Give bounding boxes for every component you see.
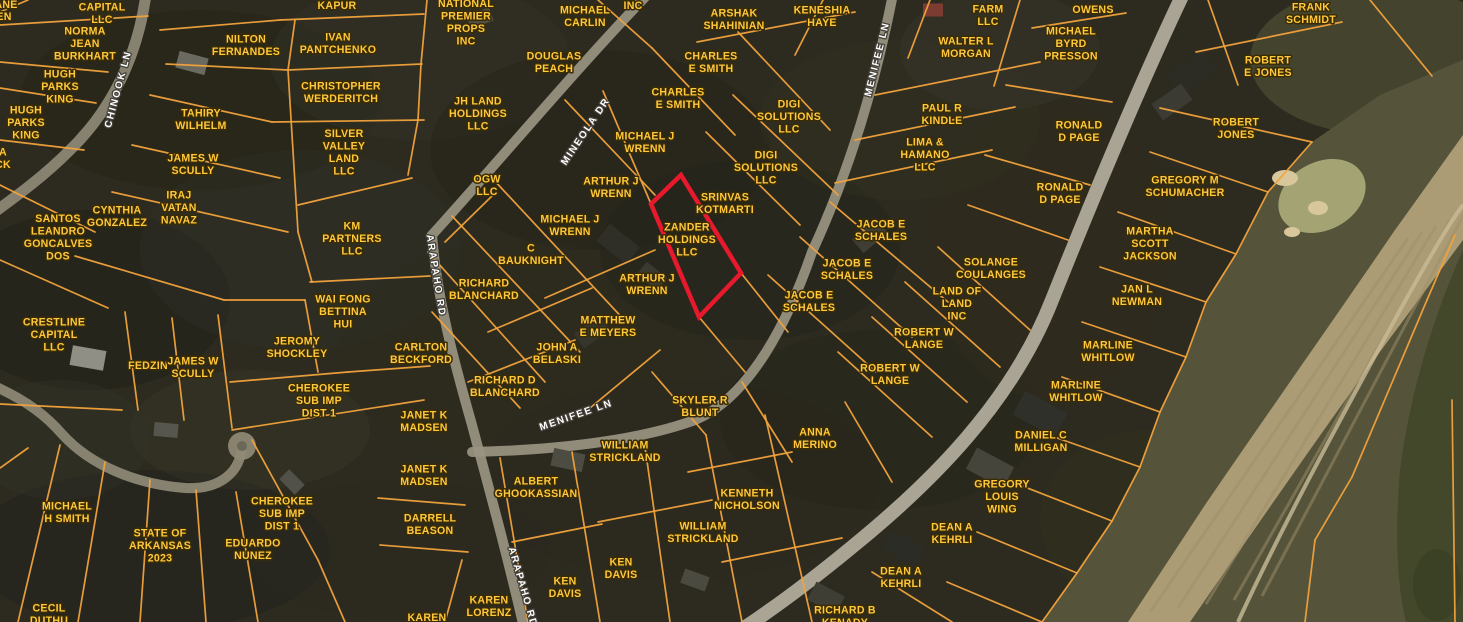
parcel-owner-label: DEAN AKEHRLI (931, 522, 973, 547)
sand-bunker (1284, 227, 1300, 237)
cul-de-sac-island (237, 441, 247, 451)
parcel-owner-label: DANIEL CMILLIGAN (1014, 430, 1067, 455)
parcel-owner-label: CHARLESE SMITH (685, 51, 738, 76)
parcel-owner-label: GREGORY MSCHUMACHER (1145, 175, 1224, 200)
parcel-owner-label: KENDAVIS (605, 557, 638, 582)
parcel-owner-label: JANET KMADSEN (400, 464, 447, 489)
parcel-owner-label: INC (624, 0, 643, 12)
parcel-owner-label: JACOB ESCHALES (855, 219, 907, 244)
parcel-owner-label: ARTHUR JWRENN (619, 273, 675, 298)
parcel-owner-label: DEAN AKEHRLI (880, 566, 922, 591)
parcel-owner-label: RICHARDBLANCHARD (449, 278, 519, 303)
parcel-owner-label: OWENS (1072, 4, 1113, 16)
sand-bunker (1308, 201, 1328, 215)
parcel-owner-label: HUGHPARKSKING (41, 68, 79, 105)
parcel-owner-label: JEROMYSHOCKLEY (267, 336, 328, 361)
parcel-owner-label: MARLINEWHITLOW (1049, 380, 1103, 405)
parcel-owner-label: JOHN ABELASKI (533, 342, 581, 367)
parcel-owner-label: CYNTHIAGONZALEZ (87, 205, 148, 230)
parcel-owner-label: JACOB ESCHALES (783, 290, 835, 315)
parcel-owner-label: SRINVASKOTMARTI (696, 192, 754, 217)
parcel-owner-label: ANE (0, 0, 18, 11)
parcel-owner-label: EN (0, 11, 12, 23)
parcel-owner-label: MICHAELCARLIN (560, 5, 610, 30)
parcel-owner-label: JAMES WSCULLY (167, 356, 218, 381)
parcel-owner-label: ANNAMERINO (793, 427, 837, 452)
parcel-owner-label: ARTHUR JWRENN (583, 176, 639, 201)
parcel-owner-label: CECILDUTHU (30, 603, 68, 622)
parcel-owner-label: DOUGLASPEACH (527, 51, 582, 76)
parcel-owner-label: FEDZIN (128, 360, 168, 372)
parcel-owner-label: TAHIRYWILHELM (175, 108, 226, 133)
parcel-owner-label: KENDAVIS (549, 576, 582, 601)
parcel-owner-label: ARSHAKSHAHINIAN (703, 8, 764, 33)
parcel-owner-label: KENNETHNICHOLSON (714, 488, 780, 513)
parcel-owner-label: OGWLLC (473, 174, 500, 199)
parcel-owner-label: RICHARD BKENADY (814, 605, 876, 622)
parcel-owner-label: PAUL RKINDLE (922, 103, 963, 128)
parcel-owner-label: KAPUR (318, 0, 357, 12)
parcel-owner-label: KAREN (408, 612, 447, 622)
parcel-owner-label: RONALDD PAGE (1037, 182, 1084, 207)
parcel-owner-label: SOLANGECOULANGES (956, 257, 1026, 282)
parcel-owner-label: KARENLORENZ (466, 595, 511, 620)
parcel-owner-label: JANET KMADSEN (400, 410, 447, 435)
parcel-owner-label: JACOB ESCHALES (821, 258, 873, 283)
parcel-owner-label: RONALDD PAGE (1056, 120, 1103, 145)
parcel-map-canvas[interactable]: CAPITALLLCNORMAJEANBURKHARTHUGHPARKSKING… (0, 0, 1463, 622)
parcel-owner-label: MARLINEWHITLOW (1081, 340, 1135, 365)
parcel-owner-label: ROBERTE JONES (1244, 55, 1292, 80)
parcel-owner-label: MATTHEWE MEYERS (580, 315, 637, 340)
parcel-owner-label: RICHARD DBLANCHARD (470, 375, 540, 400)
parcel-owner-label: ROBERTJONES (1213, 117, 1260, 142)
parcel-map-viewport[interactable]: CAPITALLLCNORMAJEANBURKHARTHUGHPARKSKING… (0, 0, 1463, 622)
parcel-owner-label: FRANKSCHMIDT (1286, 2, 1336, 27)
parcel-owner-label: WALTER LMORGAN (938, 36, 994, 61)
parcel-owner-label: JAMES WSCULLY (167, 153, 218, 178)
parcel-owner-label: CHRISTOPHERWERDERITCH (301, 81, 381, 106)
building-roof (153, 422, 178, 438)
parcel-owner-label: CARLTONBECKFORD (390, 342, 452, 367)
parcel-owner-label: CHARLESE SMITH (652, 87, 705, 112)
parcel-owner-label: MICHAELH SMITH (42, 501, 92, 526)
parcel-owner-label: HUGHPARKSKING (7, 104, 45, 141)
parcel-owner-label: DARRELLBEASON (404, 513, 457, 538)
